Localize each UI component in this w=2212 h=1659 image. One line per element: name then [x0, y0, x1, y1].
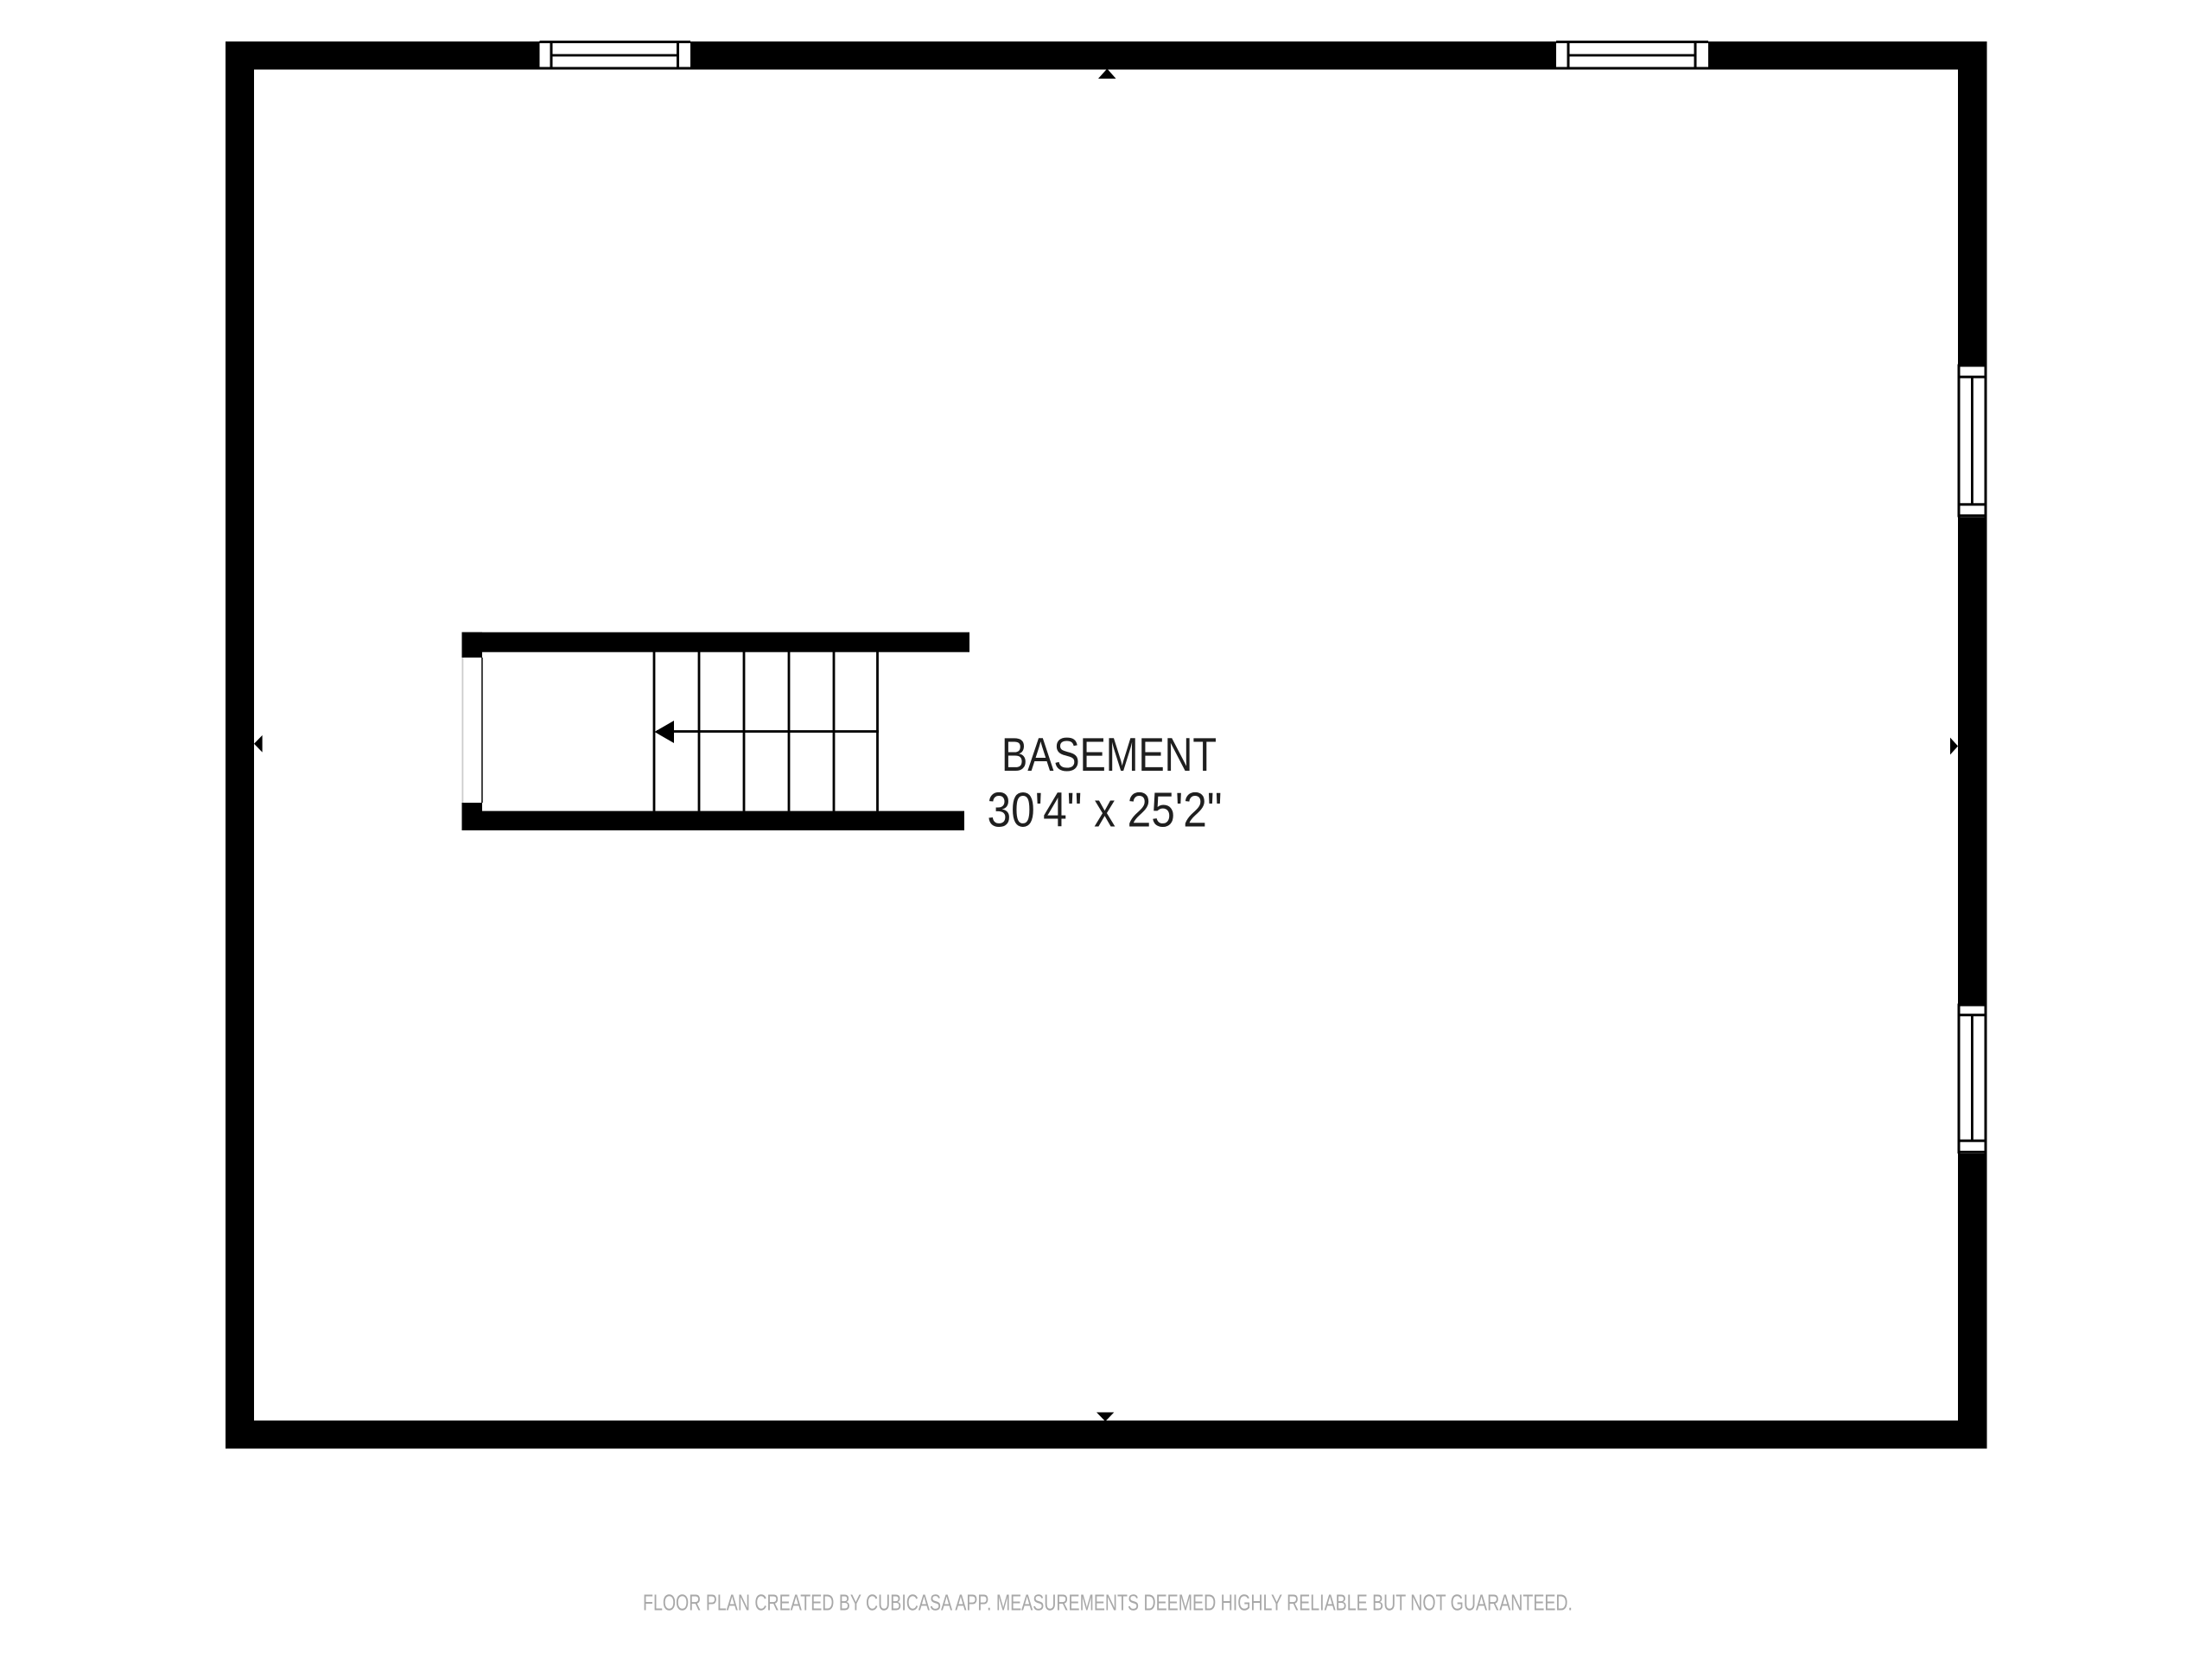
svg-text:FLOOR PLAN CREATED BY CUBICASA: FLOOR PLAN CREATED BY CUBICASA APP. MEAS… — [643, 1590, 1573, 1616]
svg-text:30'4" x 25'2": 30'4" x 25'2" — [988, 782, 1223, 837]
svg-text:BASEMENT: BASEMENT — [1001, 728, 1217, 781]
